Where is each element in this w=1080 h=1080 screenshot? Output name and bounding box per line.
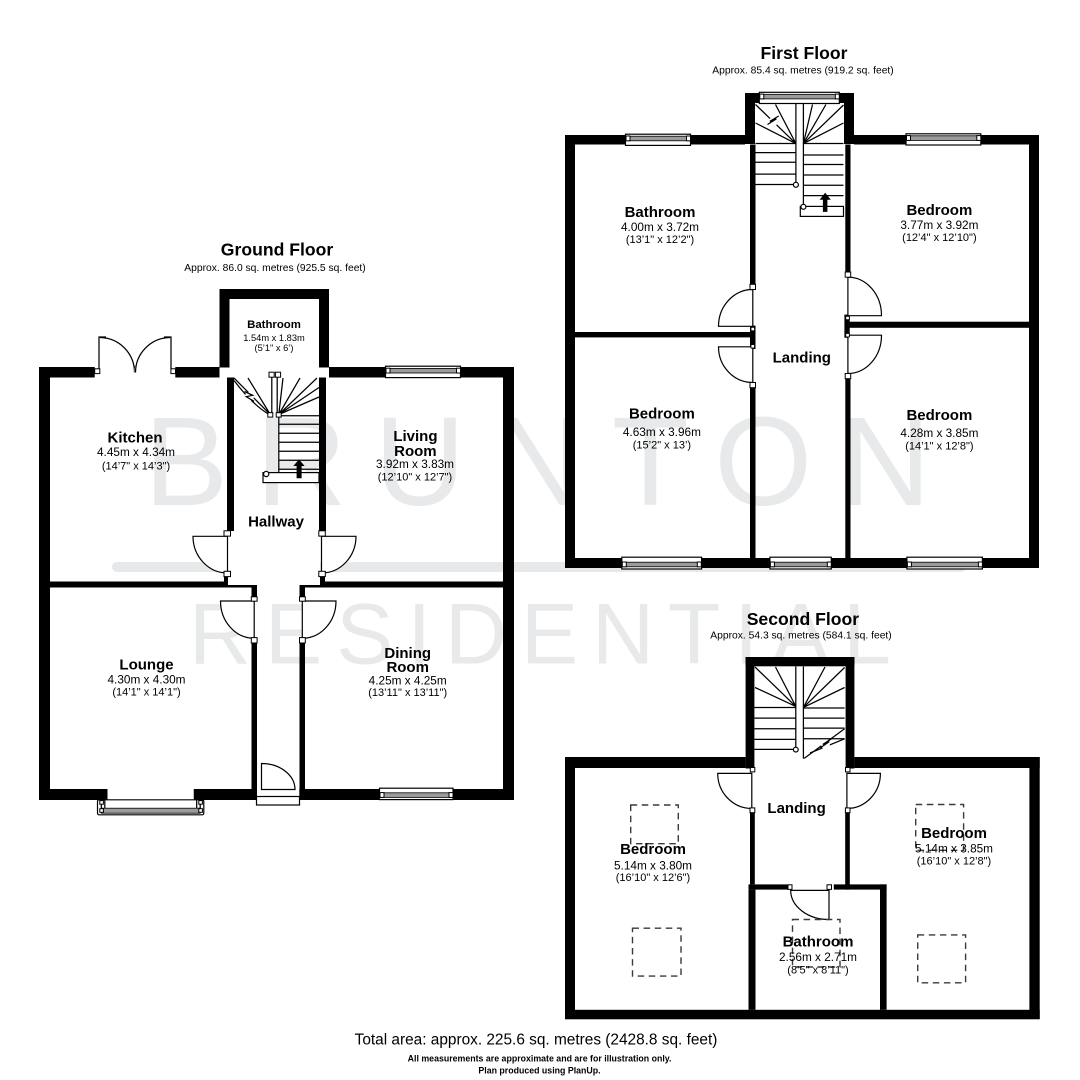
svg-text:Bedroom: Bedroom — [620, 841, 686, 858]
svg-text:Hallway: Hallway — [248, 514, 305, 531]
svg-text:Bedroom: Bedroom — [906, 202, 972, 219]
svg-text:(13’11" x 13’11"): (13’11" x 13’11") — [368, 687, 447, 699]
svg-text:(12’4" x 12’10"): (12’4" x 12’10") — [902, 232, 976, 244]
svg-text:(13’1" x 12’2"): (13’1" x 12’2") — [626, 234, 694, 246]
svg-text:2.56m x 2.71m: 2.56m x 2.71m — [779, 950, 857, 964]
svg-text:4.63m x 3.96m: 4.63m x 3.96m — [623, 425, 701, 439]
svg-text:(16’10" x 12’8"): (16’10" x 12’8") — [917, 855, 991, 867]
svg-text:(12’10" x 12’7"): (12’10" x 12’7") — [378, 472, 452, 484]
svg-text:Bathroom: Bathroom — [625, 204, 696, 221]
svg-text:(14’1" x 12’8"): (14’1" x 12’8") — [905, 441, 973, 453]
svg-text:All measurements are approxima: All measurements are approximate and are… — [408, 1054, 672, 1064]
svg-text:Approx. 54.3 sq. metres (584.1: Approx. 54.3 sq. metres (584.1 sq. feet) — [710, 631, 891, 642]
svg-text:(16’10" x 12’6"): (16’10" x 12’6") — [616, 872, 690, 884]
svg-text:Bathroom: Bathroom — [783, 934, 854, 951]
svg-text:Bedroom: Bedroom — [921, 825, 987, 842]
svg-text:Bedroom: Bedroom — [906, 407, 972, 424]
svg-text:(14’1" x 14’1"): (14’1" x 14’1") — [112, 687, 180, 699]
svg-text:(5’1" x 6’): (5’1" x 6’) — [255, 343, 294, 353]
svg-text:5.14m x 3.80m: 5.14m x 3.80m — [614, 858, 692, 872]
svg-text:5.14m x 3.85m: 5.14m x 3.85m — [915, 841, 993, 855]
svg-text:4.28m x 3.85m: 4.28m x 3.85m — [900, 426, 978, 440]
svg-text:4.45m x 4.34m: 4.45m x 4.34m — [97, 445, 175, 459]
svg-text:Approx. 85.4 sq. metres (919.2: Approx. 85.4 sq. metres (919.2 sq. feet) — [712, 66, 893, 77]
svg-text:Lounge: Lounge — [119, 656, 173, 673]
svg-text:Kitchen: Kitchen — [107, 430, 162, 447]
svg-text:1.54m x 1.83m: 1.54m x 1.83m — [243, 333, 305, 343]
svg-text:Second Floor: Second Floor — [747, 609, 860, 629]
svg-text:Bathroom: Bathroom — [247, 319, 301, 331]
svg-text:3.77m x 3.92m: 3.77m x 3.92m — [900, 218, 978, 232]
svg-text:4.00m x 3.72m: 4.00m x 3.72m — [621, 220, 699, 234]
svg-text:Total area: approx. 225.6 sq.: Total area: approx. 225.6 sq. metres (24… — [355, 1032, 718, 1049]
svg-text:(14’7" x 14’3"): (14’7" x 14’3") — [102, 461, 170, 473]
svg-text:Ground Floor: Ground Floor — [221, 240, 334, 260]
svg-text:4.30m x 4.30m: 4.30m x 4.30m — [107, 673, 185, 687]
svg-text:First Floor: First Floor — [761, 43, 848, 63]
svg-text:Bedroom: Bedroom — [629, 406, 695, 423]
svg-text:Landing: Landing — [767, 800, 825, 817]
svg-text:(15’2" x 13’): (15’2" x 13’) — [633, 439, 691, 451]
svg-text:3.92m x 3.83m: 3.92m x 3.83m — [376, 457, 454, 471]
svg-text:Approx. 86.0 sq. metres (925.5: Approx. 86.0 sq. metres (925.5 sq. feet) — [184, 263, 365, 274]
svg-text:4.25m x 4.25m: 4.25m x 4.25m — [369, 674, 447, 688]
svg-text:(8’5" x 8’11"): (8’5" x 8’11") — [787, 965, 848, 977]
svg-text:Plan produced using PlanUp.: Plan produced using PlanUp. — [478, 1066, 600, 1076]
svg-text:Landing: Landing — [773, 350, 831, 367]
